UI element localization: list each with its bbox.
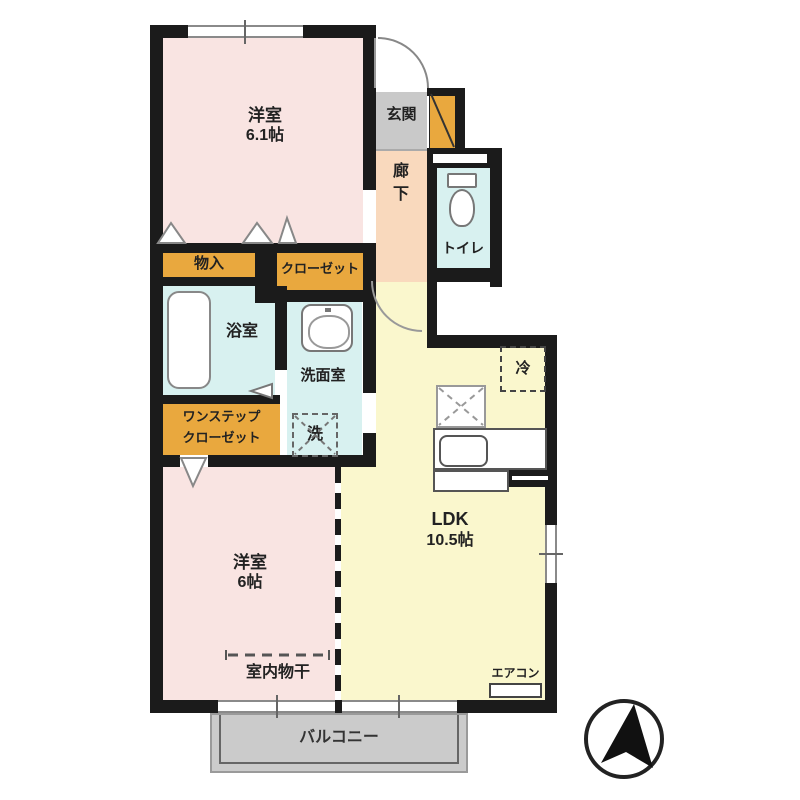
- storage-label: 物入: [163, 255, 255, 274]
- north-compass-icon: [586, 701, 662, 777]
- folding-door-mark: [181, 458, 206, 486]
- folding-door-mark: [279, 218, 296, 243]
- closet-label: クローゼット: [277, 261, 363, 277]
- bedroom2-name: 洋室: [195, 552, 305, 573]
- indoor-drying-label: 室内物干: [221, 663, 335, 683]
- folding-door-mark: [158, 223, 185, 243]
- onestep-closet-label: ワンステップ クローゼット: [165, 407, 278, 449]
- bedroom1-label: 洋室 6.1帖: [200, 105, 330, 146]
- onestep-line1: ワンステップ: [165, 407, 278, 428]
- ldk-size: 10.5帖: [385, 531, 515, 551]
- folding-door-mark: [243, 223, 272, 243]
- bedroom1-size: 6.1帖: [200, 126, 330, 146]
- ldk-name: LDK: [385, 508, 515, 531]
- balcony-label: バルコニー: [210, 728, 468, 748]
- onestep-line2: クローゼット: [165, 428, 278, 449]
- entrance-door-arc: [378, 38, 428, 88]
- bath-label: 浴室: [212, 322, 272, 342]
- hallway-door-arc: [372, 281, 422, 331]
- floor-plan: 洗 冷: [0, 0, 800, 800]
- entrance-label: 玄関: [376, 106, 427, 125]
- aircon-label: エアコン: [486, 666, 545, 681]
- hallway-label: 廊下: [391, 160, 411, 206]
- ldk-label: LDK 10.5帖: [385, 508, 515, 551]
- shoe-cabinet-diagonal: [431, 94, 454, 147]
- bedroom2-size: 6帖: [195, 573, 305, 593]
- toilet-label: トイレ: [434, 240, 492, 258]
- bath-door-mark: [251, 384, 272, 398]
- aircon-box: [489, 683, 542, 698]
- washroom-label: 洗面室: [281, 367, 365, 386]
- bedroom2-label: 洋室 6帖: [195, 552, 305, 593]
- bedroom1-name: 洋室: [200, 105, 330, 126]
